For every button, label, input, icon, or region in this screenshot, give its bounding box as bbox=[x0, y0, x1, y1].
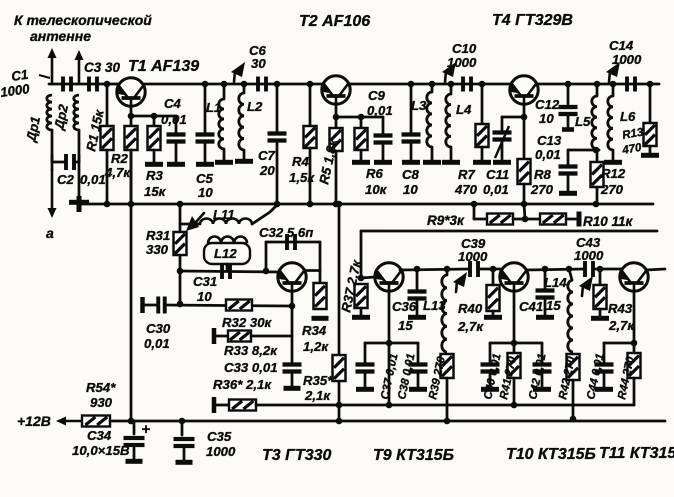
svg-text:2,7к: 2,7к bbox=[608, 318, 635, 333]
svg-text:Т9 КТ315Б: Т9 КТ315Б bbox=[373, 447, 454, 464]
svg-text:Т2 AF106: Т2 AF106 bbox=[299, 13, 370, 30]
svg-text:15к: 15к bbox=[144, 184, 167, 199]
svg-text:1000: 1000 bbox=[612, 52, 642, 67]
svg-text:С13: С13 bbox=[537, 133, 562, 148]
svg-text:0,01: 0,01 bbox=[535, 147, 561, 162]
svg-text:R43: R43 bbox=[608, 301, 633, 316]
svg-text:L14: L14 bbox=[544, 275, 567, 290]
svg-text:270: 270 bbox=[600, 182, 624, 197]
svg-text:R4: R4 bbox=[292, 154, 310, 169]
svg-text:30: 30 bbox=[251, 56, 266, 71]
svg-text:L2: L2 bbox=[247, 99, 263, 114]
svg-text:R9*3к: R9*3к bbox=[427, 213, 465, 228]
svg-text:а: а bbox=[46, 225, 54, 241]
svg-text:С10: С10 bbox=[452, 41, 477, 56]
svg-text:Др2: Др2 bbox=[51, 102, 71, 131]
svg-text:1000: 1000 bbox=[458, 249, 488, 264]
svg-text:С3 30: С3 30 bbox=[84, 60, 121, 75]
svg-text:антенне: антенне bbox=[30, 28, 91, 44]
svg-text:С2: С2 bbox=[57, 172, 75, 187]
svg-text:L4: L4 bbox=[456, 102, 472, 117]
svg-text:R10 11к: R10 11к bbox=[583, 214, 634, 229]
svg-text:С34: С34 bbox=[87, 428, 112, 443]
svg-text:К телескопической: К телескопической bbox=[14, 12, 152, 28]
svg-text:С11: С11 bbox=[486, 167, 509, 182]
svg-text:10: 10 bbox=[403, 182, 418, 197]
svg-text:L5: L5 bbox=[575, 114, 591, 129]
svg-text:Др1: Др1 bbox=[23, 115, 43, 143]
svg-text:10: 10 bbox=[539, 111, 554, 126]
svg-text:470: 470 bbox=[454, 182, 478, 197]
svg-text:R35*: R35* bbox=[303, 373, 333, 388]
svg-text:R34: R34 bbox=[302, 323, 327, 338]
svg-text:0,01: 0,01 bbox=[80, 172, 106, 187]
svg-text:2,7к: 2,7к bbox=[457, 319, 484, 334]
svg-text:270: 270 bbox=[530, 182, 554, 197]
svg-text:0,01: 0,01 bbox=[144, 336, 170, 351]
svg-text:R12: R12 bbox=[601, 166, 626, 181]
svg-text:Т3 ГТ330: Т3 ГТ330 bbox=[262, 447, 332, 464]
svg-text:R6: R6 bbox=[366, 166, 384, 181]
svg-text:L3: L3 bbox=[411, 98, 427, 113]
svg-text:L1: L1 bbox=[206, 100, 221, 115]
svg-text:+12В: +12В bbox=[17, 413, 51, 429]
svg-text:R8: R8 bbox=[534, 167, 552, 182]
svg-text:10: 10 bbox=[197, 289, 212, 304]
svg-text:15: 15 bbox=[546, 298, 561, 313]
svg-text:R54*: R54* bbox=[86, 380, 116, 395]
svg-text:15: 15 bbox=[398, 318, 413, 333]
svg-text:+: + bbox=[142, 421, 151, 438]
svg-text:С4: С4 bbox=[164, 96, 182, 111]
svg-text:1000: 1000 bbox=[447, 55, 477, 70]
svg-text:С41: С41 bbox=[519, 299, 543, 314]
svg-text:R13: R13 bbox=[621, 126, 644, 142]
svg-text:С9: С9 bbox=[368, 88, 386, 103]
svg-text:R33 8,2к: R33 8,2к bbox=[224, 343, 278, 358]
svg-text:С42 0,01: С42 0,01 bbox=[527, 352, 548, 400]
svg-text:R7: R7 bbox=[458, 167, 476, 182]
svg-text:С36: С36 bbox=[392, 299, 417, 314]
svg-text:2,1к: 2,1к bbox=[304, 388, 331, 403]
svg-text:930: 930 bbox=[90, 395, 113, 410]
svg-text:С5: С5 bbox=[196, 171, 214, 186]
svg-text:С30: С30 bbox=[146, 321, 171, 336]
svg-text:С14: С14 bbox=[609, 38, 634, 53]
svg-text:0,01: 0,01 bbox=[367, 103, 393, 118]
svg-text:С7: С7 bbox=[258, 148, 276, 163]
svg-text:0,01: 0,01 bbox=[161, 112, 187, 127]
svg-text:С12: С12 bbox=[535, 97, 560, 112]
svg-text:R32 30к: R32 30к bbox=[222, 315, 273, 330]
svg-text:10к: 10к bbox=[365, 182, 388, 197]
svg-text:1000: 1000 bbox=[0, 81, 31, 100]
svg-text:L13: L13 bbox=[423, 298, 446, 313]
svg-text:С31: С31 bbox=[193, 274, 217, 289]
svg-text:20: 20 bbox=[259, 163, 275, 178]
svg-text:R40: R40 bbox=[458, 301, 483, 316]
svg-text:R2: R2 bbox=[111, 151, 129, 166]
svg-text:Т10 КТ315Б: Т10 КТ315Б bbox=[506, 446, 596, 463]
svg-text:L6: L6 bbox=[620, 109, 636, 124]
svg-text:1,2к: 1,2к bbox=[303, 339, 329, 354]
svg-text:R36* 2,1к: R36* 2,1к bbox=[213, 377, 272, 392]
svg-text:Т4 ГТ329В: Т4 ГТ329В bbox=[492, 12, 573, 29]
svg-text:1000: 1000 bbox=[574, 248, 604, 263]
svg-text:L11: L11 bbox=[213, 207, 235, 222]
svg-text:0,01: 0,01 bbox=[483, 182, 509, 197]
svg-text:1,5к: 1,5к bbox=[289, 170, 315, 185]
svg-text:1000: 1000 bbox=[206, 444, 236, 459]
svg-text:С32 5,6п: С32 5,6п bbox=[259, 225, 313, 240]
svg-text:10: 10 bbox=[198, 185, 213, 200]
svg-text:L12: L12 bbox=[214, 246, 237, 261]
svg-text:Т1 AF139: Т1 AF139 bbox=[128, 58, 199, 75]
svg-text:330: 330 bbox=[146, 242, 169, 257]
svg-text:С33 0,01: С33 0,01 bbox=[224, 360, 278, 375]
svg-text:470: 470 bbox=[620, 142, 643, 157]
svg-text:R31: R31 bbox=[146, 228, 170, 243]
svg-text:Т11 КТ315Б: Т11 КТ315Б bbox=[599, 445, 674, 462]
svg-text:R3: R3 bbox=[146, 168, 164, 183]
svg-text:4,7к: 4,7к bbox=[104, 165, 131, 180]
svg-text:С8: С8 bbox=[402, 167, 420, 182]
svg-text:С35: С35 bbox=[207, 429, 232, 444]
svg-text:10,0×15В: 10,0×15В bbox=[72, 443, 130, 458]
